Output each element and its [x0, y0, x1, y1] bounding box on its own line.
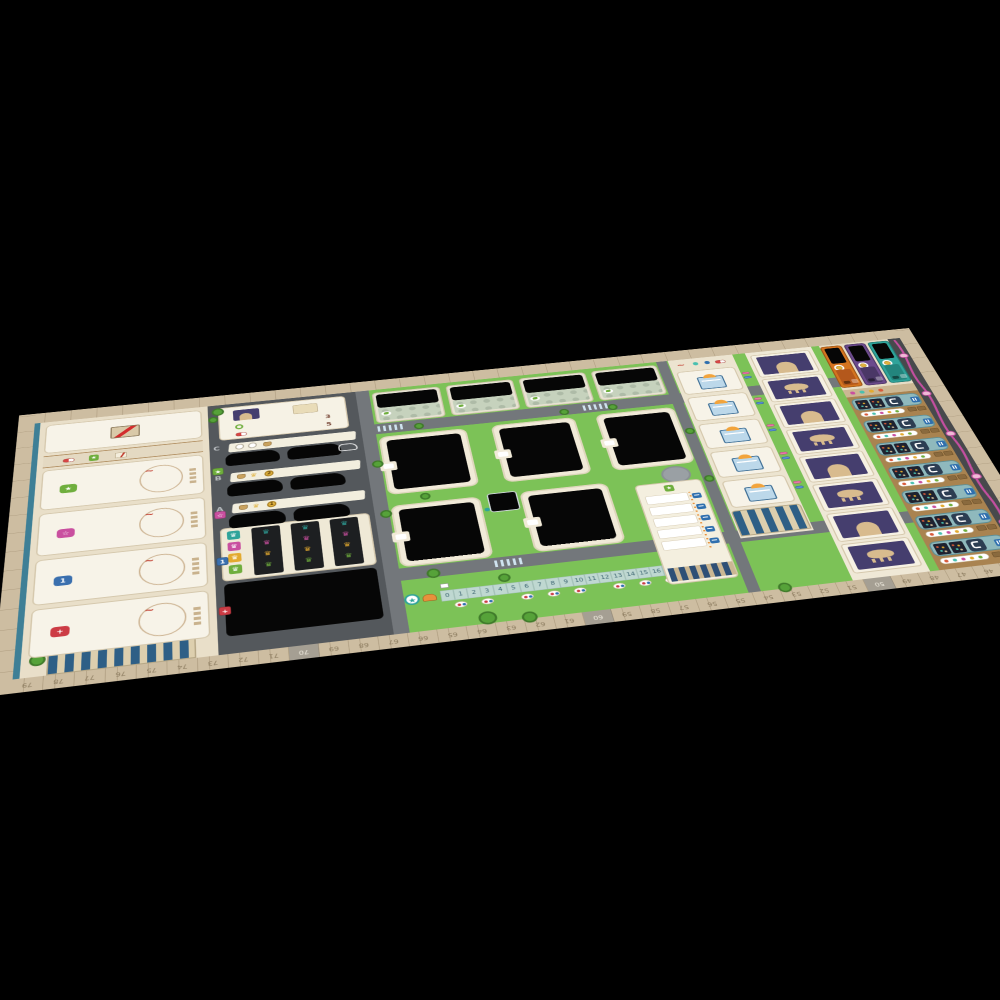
patient-card-slot-3[interactable]: [773, 398, 847, 428]
department-building-4: [590, 365, 667, 401]
bed-icon: [707, 401, 739, 416]
crown-icon: ♛: [332, 540, 361, 549]
ghost-car-icon: [338, 443, 358, 452]
staff-token-square[interactable]: [916, 406, 927, 411]
track-start-star: ★: [403, 593, 420, 605]
staff-figure-dots: [909, 469, 912, 471]
pillow-icon: [713, 399, 728, 404]
art-shape: [868, 378, 876, 381]
parking-row-letter: C: [213, 446, 220, 453]
staff-chair-slot[interactable]: [950, 512, 973, 525]
staff-token-square[interactable]: [929, 428, 940, 433]
cost-dot: [887, 411, 892, 414]
crown-icon: ♛: [294, 556, 324, 565]
ward-entrance: [600, 438, 619, 448]
cost-dot: [923, 506, 928, 509]
art-shape: [843, 381, 851, 384]
cost-dot: [907, 432, 912, 435]
parking-row-letter: A: [216, 506, 224, 514]
department-building-3: [518, 372, 594, 408]
deck-artwork: [835, 369, 859, 386]
helipad-slot[interactable]: [486, 491, 521, 513]
crown-icon: ♛: [254, 560, 284, 569]
token-dot: [524, 596, 528, 599]
staff-count-tag: [936, 440, 948, 447]
cost-dot: [961, 557, 966, 560]
patient-art: [767, 376, 826, 399]
ward-building-1: [378, 428, 479, 495]
staff-figure-dots: [857, 402, 860, 404]
reputation-node: [898, 353, 910, 358]
art-shape: [892, 376, 900, 379]
cost-dot: [954, 530, 959, 533]
bonus-token: [547, 590, 561, 597]
tree: [703, 475, 716, 483]
cost-dot: [952, 558, 957, 561]
staff-chair-slot[interactable]: [936, 487, 959, 500]
deck-artwork: [884, 364, 908, 381]
tree: [426, 568, 442, 579]
tree: [497, 573, 511, 583]
staff-chair-slot[interactable]: [922, 463, 944, 475]
patient-card-slot-4[interactable]: [785, 424, 861, 455]
ward-building-3: [595, 407, 696, 471]
crown-color-square: ♛: [228, 553, 242, 563]
token-dot: [462, 603, 466, 606]
helipad-dot: [484, 508, 490, 512]
action-badge-icon: +: [50, 625, 70, 637]
tree: [684, 427, 696, 434]
cost-dot: [918, 481, 923, 484]
cost-dot: [892, 434, 897, 437]
bracket-icon: [970, 541, 982, 549]
leaf-icon: [603, 389, 614, 394]
staff-figure-dots: [869, 424, 872, 426]
patient-head-icon: [774, 361, 799, 373]
tree: [419, 492, 431, 500]
token-dot: [529, 595, 533, 598]
bed-slot-2[interactable]: [686, 392, 756, 422]
token-dot: [484, 600, 488, 603]
bracket-icon: [927, 466, 938, 473]
art-shape: [899, 374, 908, 379]
crown-color-square: ♛: [227, 530, 240, 540]
crown-score-column: ♛♛♛♛: [329, 517, 364, 567]
token-dot: [457, 603, 461, 606]
staff-figure-dots: [908, 495, 911, 497]
patient-art: [818, 481, 883, 508]
staff-figure-dots: [951, 544, 955, 546]
leaf-icon: [530, 396, 541, 401]
token-dot: [616, 585, 620, 588]
photo-stage: 7978777675747372717069686766656463626160…: [0, 0, 1000, 1000]
waiting-header-icon: ★: [663, 485, 675, 492]
patient-head-icon: [798, 410, 824, 423]
waiting-row-tag: [709, 537, 720, 543]
bonus-token: [638, 579, 652, 586]
leaf-icon: [456, 403, 467, 408]
staff-shelf-7: [927, 534, 1000, 557]
bus-stop-icon: [440, 583, 449, 588]
cost-dot: [963, 529, 968, 532]
token-dot: [646, 581, 650, 584]
ward-tile-slot[interactable]: [398, 502, 485, 562]
leaf-icon: [381, 411, 392, 416]
action-badge-icon: ☆: [56, 528, 74, 539]
crown-color-square: ♛: [229, 564, 243, 574]
staff-figure-dots: [871, 401, 874, 403]
animal-icon: [836, 488, 865, 498]
pouch-icon: [263, 441, 272, 446]
crown-icon: ♛: [252, 503, 260, 509]
tree: [477, 610, 498, 625]
vendor-cart-icon: [422, 593, 437, 601]
cost-dot: [920, 455, 925, 458]
ward-building-5: [519, 483, 626, 553]
cost-capsule-pink: [754, 397, 763, 400]
ward-entrance: [523, 517, 543, 528]
cost-capsule-pink: [792, 481, 801, 484]
patient-art: [847, 540, 915, 569]
patient-head-icon: [825, 463, 852, 477]
tally-marks: [192, 556, 200, 574]
cost-dot: [938, 532, 943, 535]
ward-building-4: [390, 496, 494, 567]
animal-icon: [865, 548, 895, 559]
cost-dot: [876, 436, 881, 439]
staff-count-tag: [922, 418, 934, 425]
ward-tile-slot[interactable]: [527, 488, 617, 546]
pillow-icon: [737, 454, 752, 459]
plate-icon: [235, 443, 245, 449]
cost-capsule-blue: [744, 376, 753, 379]
staff-chair-slot[interactable]: [896, 418, 917, 429]
bed-icon: [744, 485, 778, 502]
cost-capsule-blue: [756, 402, 765, 405]
ward-entrance: [494, 449, 513, 459]
patient-art: [792, 427, 854, 452]
parking-row-letter: B: [215, 475, 222, 482]
bed-slot-4[interactable]: [709, 446, 782, 478]
crown-icon: ♛: [253, 549, 282, 558]
reputation-node: [920, 390, 932, 396]
cost-dot: [895, 410, 900, 413]
staff-figure-dots: [896, 445, 899, 447]
action-badge-icon: 1: [53, 575, 72, 587]
deck-card-cutout[interactable]: [848, 345, 871, 361]
art-shape: [875, 376, 884, 381]
staff-token-square[interactable]: [991, 551, 1000, 557]
staff-token-square[interactable]: [986, 524, 998, 530]
staff-count-tag: [910, 396, 921, 402]
ward-tile-slot[interactable]: [498, 422, 583, 477]
art-shape: [851, 379, 860, 384]
patient-card-slot-6[interactable]: [811, 478, 890, 512]
patient-art: [805, 453, 868, 479]
staff-token-square[interactable]: [957, 474, 968, 479]
tree: [413, 422, 424, 429]
cost-dot: [913, 456, 918, 459]
token-dot: [489, 600, 493, 603]
animal-icon: [808, 433, 836, 443]
cost-dot: [926, 480, 931, 483]
staff-chair-slot[interactable]: [909, 440, 931, 452]
game-board: 7978777675747372717069686766656463626160…: [0, 328, 1000, 696]
staff-figure-dots: [923, 493, 926, 495]
cost-dot: [940, 504, 945, 507]
tree: [776, 582, 794, 593]
deck-card-cutout[interactable]: [871, 343, 894, 359]
cost-dot: [889, 459, 894, 462]
crown-icon: ♛: [334, 551, 364, 560]
bonus-token: [612, 582, 626, 589]
bracket-icon: [914, 443, 925, 450]
cost-dot: [915, 507, 920, 510]
staff-chair-slot[interactable]: [884, 396, 905, 407]
ward-tile-slot[interactable]: [386, 433, 471, 490]
crown-icon: ♛: [331, 530, 360, 539]
action-badge-icon: ★: [59, 483, 77, 493]
staff-token-square[interactable]: [943, 451, 954, 456]
cost-dot: [932, 505, 937, 508]
waiting-row-tag: [696, 503, 707, 509]
bracket-icon: [941, 490, 952, 497]
tree: [558, 409, 570, 416]
patient-art: [779, 401, 840, 425]
bed-icon: [719, 428, 752, 444]
bracket-icon: [955, 515, 966, 522]
squiggle-icon: ~: [144, 556, 154, 566]
bonus-token: [454, 601, 468, 608]
cost-capsule-blue: [768, 428, 777, 431]
bonus-token: [521, 593, 535, 600]
patient-art: [756, 353, 814, 375]
cost-dot: [879, 412, 884, 415]
crown-icon: ♛: [330, 519, 359, 528]
pouch-icon: [239, 505, 248, 511]
staff-count-tag: [978, 513, 991, 521]
board-3d-wrapper: 7978777675747372717069686766656463626160…: [0, 328, 1000, 696]
pillow-icon: [749, 483, 765, 489]
ward-building-2: [491, 417, 593, 482]
token-dot: [550, 593, 554, 596]
crown-icon: ♛: [252, 538, 281, 547]
squiggle-icon: ~: [144, 605, 154, 616]
bonus-token: [481, 598, 495, 605]
tree: [380, 509, 393, 518]
tally-marks: [191, 510, 198, 527]
crown-icon: ♛: [292, 534, 321, 543]
crown-color-square: ♛: [227, 541, 241, 551]
department-building-1: [371, 386, 446, 423]
cost-dot: [929, 533, 934, 536]
token-dot: [620, 584, 624, 587]
bed-slot-5[interactable]: [721, 475, 796, 509]
ward-entrance: [391, 531, 410, 543]
staff-token-square[interactable]: [971, 499, 983, 505]
bracket-icon: [901, 420, 911, 426]
crown-icon: ♛: [251, 528, 280, 537]
cost-dot: [897, 458, 902, 461]
cost-dot: [934, 479, 939, 482]
cost-dot: [872, 412, 877, 415]
tree: [521, 611, 539, 624]
staff-count-tag: [963, 488, 975, 495]
squiggle-icon: ~: [144, 510, 154, 520]
animal-icon: [783, 382, 810, 391]
cost-capsule-pink: [766, 424, 775, 427]
bed-slot-1[interactable]: [676, 367, 745, 396]
tally-marks: [193, 606, 201, 626]
department-building-2: [445, 379, 520, 416]
cost-capsule-pink: [779, 452, 788, 455]
token-dot: [555, 592, 559, 595]
patient-card-slot-7[interactable]: [825, 507, 906, 543]
cost-dot: [969, 556, 974, 559]
staff-figure-dots: [882, 447, 885, 449]
cost-dot: [978, 555, 983, 558]
bed-icon: [731, 455, 764, 472]
reputation-node: [944, 430, 957, 436]
cost-dot: [910, 482, 915, 485]
staff-figure-dots: [894, 470, 897, 472]
row-marker-icon: 1: [216, 557, 228, 566]
waiting-row-tag: [691, 492, 702, 498]
bed-icon: [696, 375, 727, 390]
bed-slot-3[interactable]: [698, 418, 770, 449]
patient-art: [833, 510, 899, 538]
crown-score-column: ♛♛♛♛: [251, 525, 284, 575]
crown-icon: ♛: [291, 523, 320, 532]
plate-icon: [248, 442, 257, 448]
cost-dot: [905, 457, 910, 460]
cost-dot: [946, 531, 951, 534]
waiting-panel-base: [667, 561, 737, 582]
bracket-icon: [888, 398, 898, 404]
deck-card-cutout[interactable]: [824, 348, 847, 364]
coin-value: 2: [264, 470, 274, 477]
squiggle-icon: ~: [145, 467, 154, 476]
cost-dot: [902, 482, 907, 485]
tally-marks: [189, 467, 196, 483]
cost-dot: [884, 435, 889, 438]
token-dot: [642, 582, 646, 585]
cost-capsule-pink: [742, 372, 751, 375]
waiting-row-tag: [704, 526, 715, 532]
patient-head-icon: [854, 521, 883, 537]
row-marker-icon: +: [219, 606, 232, 616]
patient-card-slot-8[interactable]: [840, 537, 923, 574]
staff-count-tag: [949, 464, 961, 471]
pillow-icon: [725, 426, 740, 431]
cost-capsule-blue: [781, 456, 790, 459]
patient-card-slot-5[interactable]: [798, 450, 875, 483]
cost-dot: [900, 433, 905, 436]
deck-artwork: [860, 366, 884, 383]
pouch-icon: [237, 474, 246, 479]
cost-dot: [948, 503, 953, 506]
cost-dot: [864, 413, 869, 416]
staff-chair-slot[interactable]: [965, 538, 989, 552]
pillow-icon: [702, 374, 716, 379]
staff-figure-dots: [937, 518, 941, 520]
waiting-row-slot[interactable]: [661, 537, 708, 551]
reputation-node: [970, 473, 983, 479]
crown-icon: ♛: [293, 545, 322, 554]
waiting-row-tag: [700, 514, 711, 520]
tree: [607, 404, 619, 411]
staff-figure-dots: [921, 520, 925, 522]
crown-score-column: ♛♛♛♛: [290, 521, 324, 571]
token-dot: [576, 590, 580, 593]
crown-icon: ♛: [250, 472, 257, 478]
coin-value: 1: [267, 501, 277, 508]
staff-count-tag: [993, 539, 1000, 547]
staff-figure-dots: [936, 546, 940, 548]
cost-dot: [944, 559, 949, 562]
cost-capsule-blue: [795, 485, 804, 488]
bonus-token: [573, 587, 587, 594]
token-dot: [581, 589, 585, 592]
staff-figure-dots: [884, 423, 887, 425]
